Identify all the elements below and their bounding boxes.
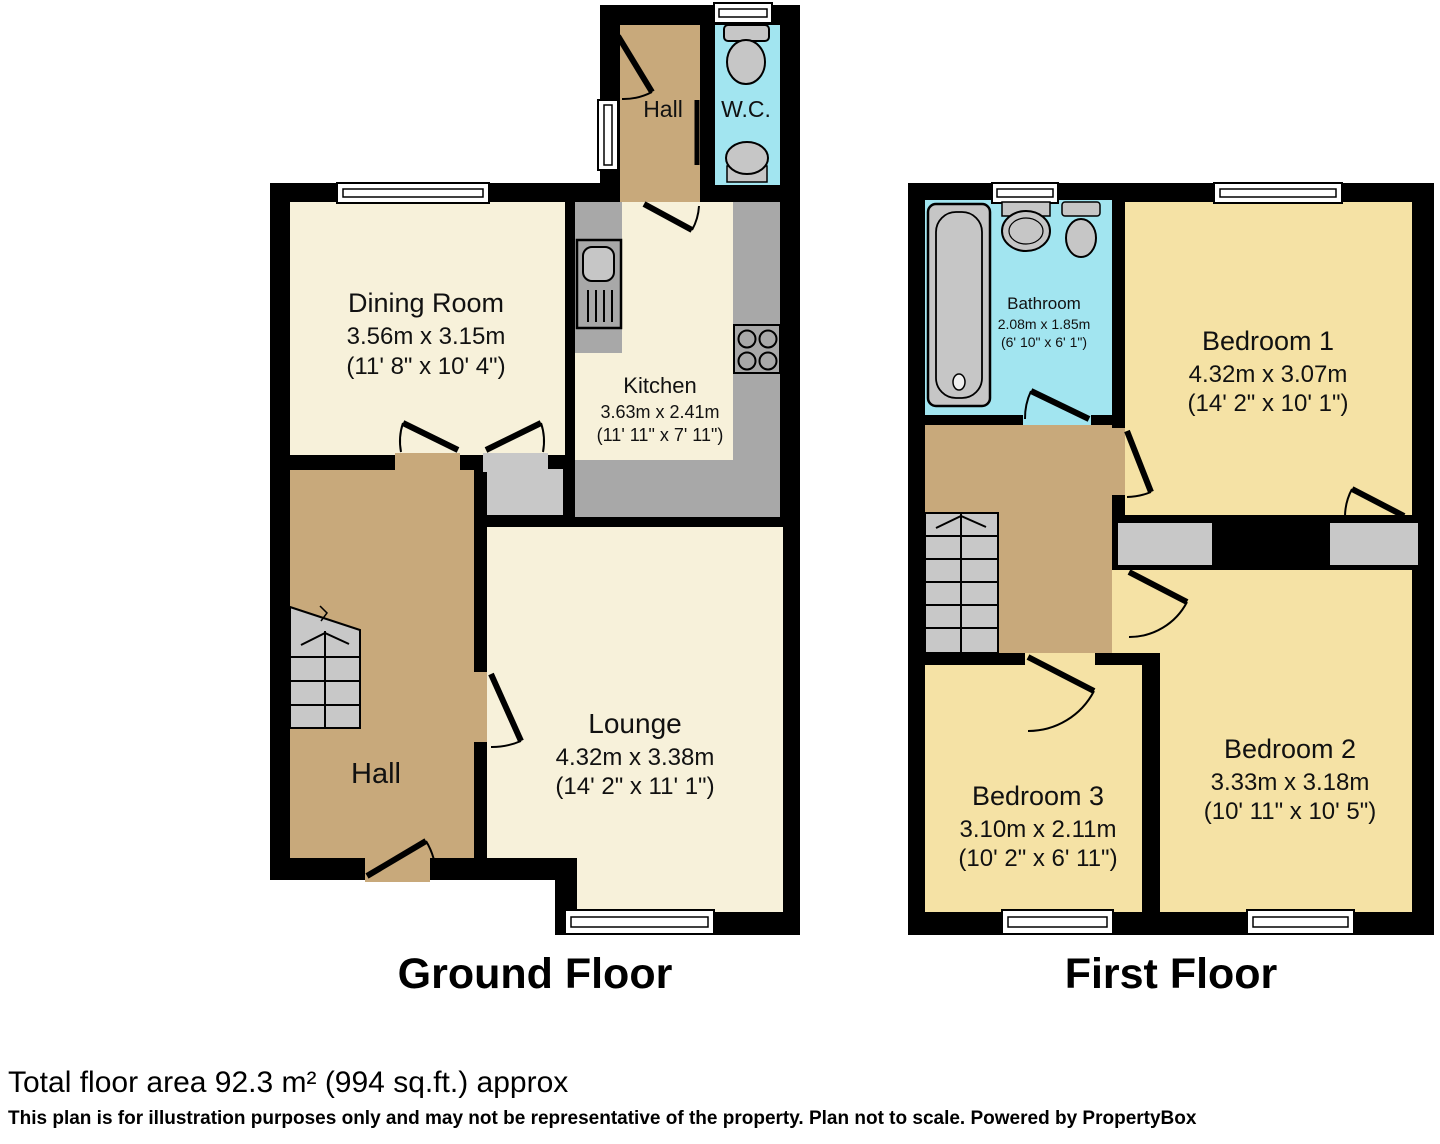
window-bedroom1 (1214, 183, 1342, 203)
toilet-icon-bathroom (1062, 202, 1100, 257)
ground-floor-title: Ground Floor (270, 950, 800, 999)
first-floor-title: First Floor (908, 950, 1434, 999)
doorway-landing-bedroom1 (1112, 428, 1125, 495)
bathroom-label: Bathroom (1007, 294, 1081, 313)
total-floor-area: Total floor area 92.3 m² (994 sq.ft.) ap… (8, 1066, 568, 1100)
bedroom1-dims-m: 4.32m x 3.07m (1189, 361, 1348, 388)
bedroom2-dims-m: 3.33m x 3.18m (1211, 769, 1370, 796)
room-bedroom1 (1125, 202, 1412, 515)
bath-drain (953, 374, 965, 390)
bedroom3-dims-ft: (10' 2" x 6' 11") (958, 845, 1117, 872)
basin-icon-bathroom (1002, 202, 1050, 251)
staircase-first (925, 513, 998, 653)
bedroom3-dims-m: 3.10m x 2.11m (960, 816, 1117, 843)
cupboard-left (1118, 523, 1212, 565)
disclaimer-text: This plan is for illustration purposes o… (8, 1108, 1196, 1130)
bath-icon (928, 204, 990, 406)
bedroom2-label: Bedroom 2 (1224, 734, 1356, 764)
floorplan-page: Dining Room 3.56m x 3.15m (11' 8" x 10' … (0, 0, 1440, 1144)
bathroom-dims-ft: (6' 10" x 6' 1") (1001, 334, 1087, 350)
window-bedroom2 (1247, 910, 1354, 934)
bedroom1-label: Bedroom 1 (1202, 326, 1334, 356)
cupboard-right (1330, 523, 1418, 565)
bedroom1-dims-ft: (14' 2" x 10' 1") (1188, 390, 1349, 417)
bathroom-dims-m: 2.08m x 1.85m (998, 316, 1091, 332)
window-bathroom (992, 183, 1058, 203)
window-bedroom3 (1002, 910, 1113, 934)
bedroom2-dims-ft: (10' 11" x 10' 5") (1204, 798, 1377, 825)
bedroom3-label: Bedroom 3 (972, 781, 1104, 811)
